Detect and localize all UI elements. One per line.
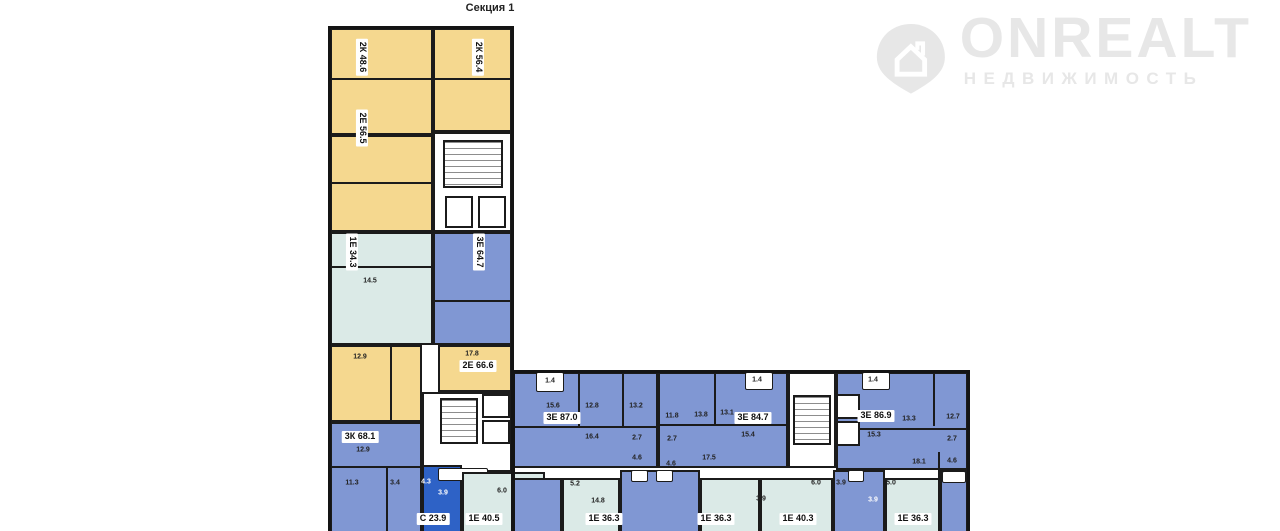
room-area: 2.7 [667, 436, 677, 443]
section-title: Секция 1 [450, 2, 530, 14]
room-area: 3.9 [836, 480, 846, 487]
watermark-subtitle: НЕДВИЖИМОСТЬ [964, 69, 1252, 89]
room-area: 3.9 [756, 496, 766, 503]
apartment-label[interactable]: 1Е 36.3 [894, 513, 931, 525]
apartment-label[interactable]: 2К 48.6 [356, 39, 368, 76]
wall [658, 424, 788, 426]
apartment-label[interactable]: 2Е 56.5 [356, 109, 368, 146]
loggia [656, 470, 673, 482]
elevator [482, 420, 510, 444]
room-area: 17.8 [465, 351, 479, 358]
room-area: 18.1 [912, 459, 926, 466]
loggia [942, 471, 966, 483]
watermark-brand: ONREALT [960, 10, 1252, 67]
room-area: 14.8 [591, 498, 605, 505]
room-area: 5.0 [886, 480, 896, 487]
room-area: 5.2 [570, 481, 580, 488]
apartment-label[interactable]: 3Е 84.7 [734, 412, 771, 424]
room-area: 12.7 [946, 414, 960, 421]
stairs-upper [443, 140, 503, 188]
elevator [836, 394, 860, 419]
apartment-label[interactable]: С 23.9 [417, 513, 450, 525]
elevator [836, 421, 860, 446]
stairs-wing [793, 395, 831, 445]
apartment-label[interactable]: 1Е 36.3 [585, 513, 622, 525]
room-area: 17.5 [702, 455, 716, 462]
apartment-block[interactable] [512, 478, 562, 531]
apartment-label[interactable]: 3Е 64.7 [473, 233, 485, 270]
wall [714, 372, 716, 426]
room-area: 14.5 [363, 278, 377, 285]
room-area: 13.3 [902, 416, 916, 423]
room-area: 6.0 [497, 488, 507, 495]
room-area: 3.9 [868, 497, 878, 504]
room-area: 4.6 [947, 458, 957, 465]
room-area: 12.9 [353, 354, 367, 361]
apartment-label[interactable]: 3Е 86.9 [857, 410, 894, 422]
apartment-label[interactable]: 3Е 87.0 [543, 412, 580, 424]
wall [330, 182, 433, 184]
room-area: 3.4 [390, 480, 400, 487]
room-area: 15.4 [741, 432, 755, 439]
watermark: ONREALT НЕДВИЖИМОСТЬ [872, 10, 1252, 110]
apartment-2k-48-6[interactable] [330, 28, 433, 135]
apartment-label[interactable]: 2Е 66.6 [459, 360, 496, 372]
room-area: 1.4 [868, 377, 878, 384]
wall [330, 78, 433, 80]
room-area: 11.3 [345, 480, 358, 487]
room-area: 2.7 [632, 435, 642, 442]
wall [858, 428, 968, 430]
room-area: 13.8 [694, 412, 708, 419]
room-area: 13.1 [720, 410, 734, 417]
elevator [478, 196, 506, 228]
room-area: 15.6 [546, 403, 560, 410]
room-area: 1.4 [545, 378, 555, 385]
wall [390, 345, 392, 422]
wall [433, 300, 512, 302]
wall [386, 466, 388, 531]
apartment-label[interactable]: 2К 56.4 [472, 39, 484, 76]
apartment-2e-66-6[interactable] [330, 345, 422, 422]
room-area: 12.8 [585, 403, 599, 410]
room-area: 4.6 [666, 461, 676, 468]
apartment-label[interactable]: 1Е 34.3 [346, 233, 358, 270]
house-pin-icon [872, 10, 950, 106]
wall [933, 372, 935, 426]
elevator [482, 394, 510, 418]
wall [330, 466, 422, 468]
room-area: 1.4 [752, 377, 762, 384]
apartment-label[interactable]: 1Е 40.3 [779, 513, 816, 525]
room-area: 3.9 [438, 490, 448, 497]
apartment-label[interactable]: 1Е 40.5 [465, 513, 502, 525]
loggia [848, 470, 864, 482]
wall [938, 452, 940, 531]
elevator [445, 196, 473, 228]
stairs-lower [440, 398, 478, 444]
wall [433, 78, 512, 80]
wall [512, 426, 658, 428]
room-area: 13.2 [629, 403, 643, 410]
room-area: 11.8 [665, 413, 678, 420]
apartment-label[interactable]: 3К 68.1 [342, 431, 379, 443]
room-area: 12.9 [356, 447, 370, 454]
loggia [631, 470, 648, 482]
room-area: 2.7 [947, 436, 957, 443]
room-area: 6.0 [811, 480, 821, 487]
room-area: 4.3 [421, 479, 431, 486]
room-area: 4.6 [632, 455, 642, 462]
room-area: 16.4 [585, 434, 599, 441]
wall [622, 372, 624, 428]
room-area: 15.3 [867, 432, 881, 439]
floor-plan: Секция 1 [0, 0, 1280, 531]
apartment-label[interactable]: 1Е 36.3 [697, 513, 734, 525]
